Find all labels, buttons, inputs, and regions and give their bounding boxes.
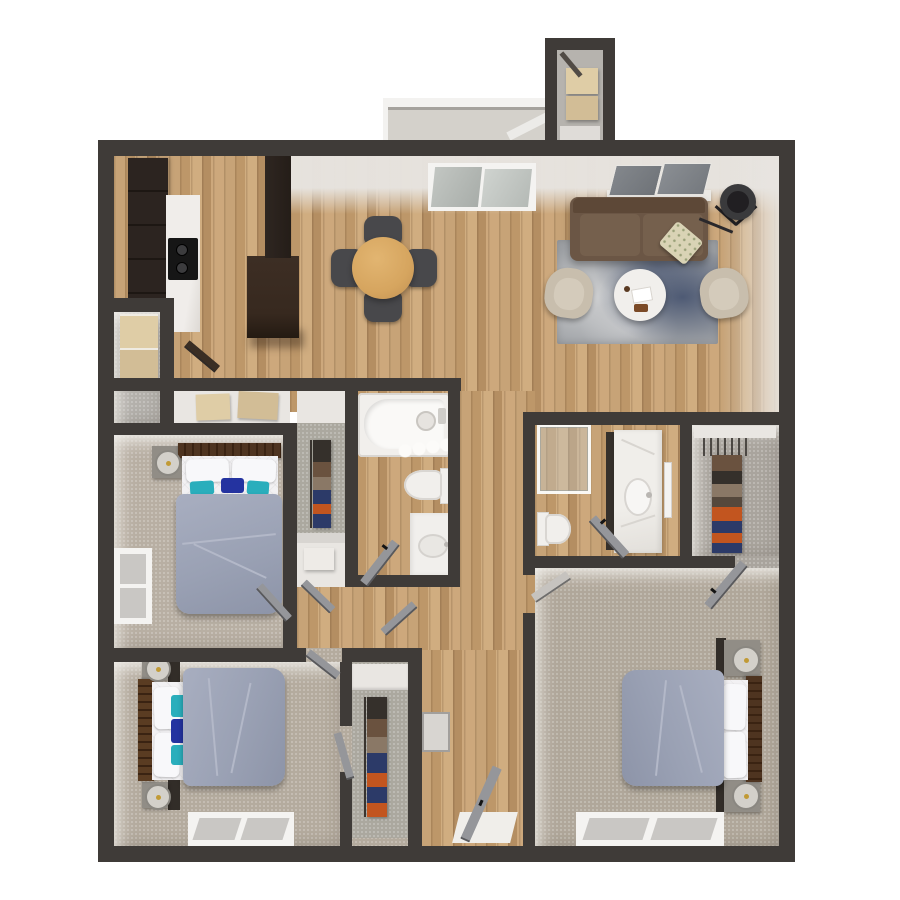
wall-band-a [98, 378, 461, 391]
closet-shelf-box [196, 393, 231, 420]
bed1-accent-pillow-navy [221, 478, 244, 493]
cooktop-burner [176, 244, 188, 256]
cooktop-burner [176, 262, 188, 274]
toilet-bowl [545, 514, 571, 544]
dining-table [352, 237, 414, 299]
hanging-clothes [712, 455, 742, 553]
storage-shelf-box [566, 96, 598, 120]
kitchen-cabinet-column [265, 156, 291, 258]
linen-shelf-box [304, 548, 334, 570]
clothes-segment [712, 497, 742, 507]
hanging-clothes [313, 440, 331, 528]
wall-bedroom2-closet-lower [340, 772, 352, 846]
closet-shelf-box [237, 391, 278, 420]
laundry-appliance [120, 348, 158, 380]
clothes-segment [367, 773, 387, 787]
wall-storage-left [545, 38, 557, 156]
kitchen-cabinets-tall [128, 158, 168, 302]
patio-door-glass [481, 169, 532, 207]
bed3-headboard [746, 676, 762, 782]
bed3-pillow [721, 684, 747, 731]
window-bedroom-2 [188, 812, 294, 846]
clothes-segment [367, 719, 387, 737]
clothes-segment [712, 533, 742, 543]
hanging-clothes [367, 697, 387, 817]
clothes-segment [313, 477, 331, 490]
floor-lamp-shade [720, 184, 756, 220]
wall-bedroom1-top [98, 423, 297, 435]
tv-screen [608, 165, 663, 196]
wall-bath2-top [523, 412, 779, 425]
wall-storage-top [545, 38, 615, 50]
window-bedroom-1 [114, 548, 152, 624]
sofa-cushion [580, 214, 640, 256]
tv-screen [656, 163, 712, 195]
closet-shelf-divider [297, 533, 345, 543]
coffee-table-cup [624, 286, 630, 292]
closet-shelf-white [352, 664, 408, 690]
patio-door-glass [431, 167, 482, 207]
walkin-shelf [694, 426, 776, 438]
clothes-segment [712, 455, 742, 471]
tub-faucet [438, 408, 446, 424]
wall-outer-bottom [98, 846, 795, 862]
wall-bathroom1-left [345, 378, 358, 587]
patio-sliding-door [428, 163, 536, 211]
wall-closet2-right [408, 650, 422, 846]
window-pane [582, 818, 649, 840]
closet-rod [364, 697, 366, 817]
window-master-bedroom [576, 812, 724, 846]
floor-plan-canvas [0, 0, 900, 900]
wall-outer-left [98, 140, 114, 862]
clothes-segment [313, 490, 331, 504]
window-pane [650, 818, 717, 840]
clothes-segment [367, 753, 387, 773]
sofa-back [573, 198, 705, 213]
balcony-railing [383, 98, 545, 107]
bed3-pillow [721, 732, 747, 779]
clothes-segment [367, 803, 387, 817]
clothes-segment [313, 440, 331, 462]
wall-laundry-top [98, 298, 174, 312]
wall-outer-top [98, 140, 795, 156]
window-pane [120, 588, 146, 618]
clothes-segment [712, 484, 742, 497]
nightstand-lamp [145, 784, 171, 810]
kitchen-island [247, 256, 299, 338]
wall-laundry-right [160, 298, 174, 435]
wall-hall-bottom-left [98, 648, 306, 662]
nightstand-lamp [732, 782, 760, 810]
shower-head [416, 411, 436, 431]
clothes-segment [712, 507, 742, 521]
wall-bath2-closet-divider [680, 425, 692, 566]
closet-rod [310, 440, 312, 528]
wall-bathroom1-right [448, 378, 460, 587]
bed2-duvet [183, 668, 285, 786]
clothes-segment [313, 514, 331, 528]
wall-hall-master-lower [523, 613, 535, 846]
walkin-hanger-rod [698, 438, 748, 456]
clothes-segment [313, 504, 331, 514]
balcony-railing-line [383, 107, 545, 110]
window-pane [240, 818, 289, 840]
nightstand-lamp [155, 450, 181, 476]
wall-storage-right [603, 38, 615, 156]
clothes-segment [712, 521, 742, 533]
clothes-segment [313, 462, 331, 477]
floor-closet-strip-upper [297, 391, 345, 423]
coffee-table-tray [634, 304, 648, 312]
wall-hall-master-upper [523, 412, 535, 575]
wall-stub-entry [422, 712, 450, 752]
bathroom-mirror [664, 462, 672, 518]
clothes-segment [367, 787, 387, 803]
wall-master-top [523, 556, 735, 568]
nightstand-lamp [732, 646, 760, 674]
storage-shelf-box [566, 68, 598, 94]
toilet-bowl [404, 470, 442, 500]
clothes-segment [367, 737, 387, 753]
window-pane [120, 554, 146, 584]
wall-bedroom1-right [283, 423, 297, 662]
window-pane [192, 818, 241, 840]
sink-faucet [646, 492, 652, 498]
clothes-segment [712, 543, 742, 553]
clothes-segment [367, 697, 387, 719]
wall-bedroom2-closet-upper [340, 662, 352, 726]
shower-enclosure [537, 424, 591, 494]
laundry-appliance [120, 314, 158, 348]
clothes-segment [712, 471, 742, 484]
bed3-duvet [622, 670, 724, 786]
wall-outer-right [779, 140, 795, 862]
